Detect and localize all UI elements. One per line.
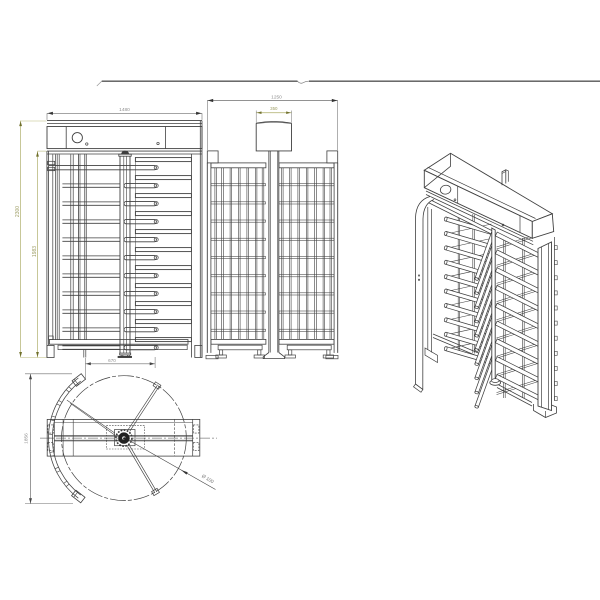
- svg-text:1983: 1983: [32, 246, 38, 257]
- svg-text:670: 670: [108, 358, 116, 363]
- svg-text:350: 350: [270, 106, 278, 111]
- svg-text:1480: 1480: [119, 107, 130, 113]
- svg-text:2300: 2300: [15, 206, 21, 217]
- svg-text:1250: 1250: [271, 94, 282, 100]
- svg-text:1856: 1856: [24, 433, 30, 444]
